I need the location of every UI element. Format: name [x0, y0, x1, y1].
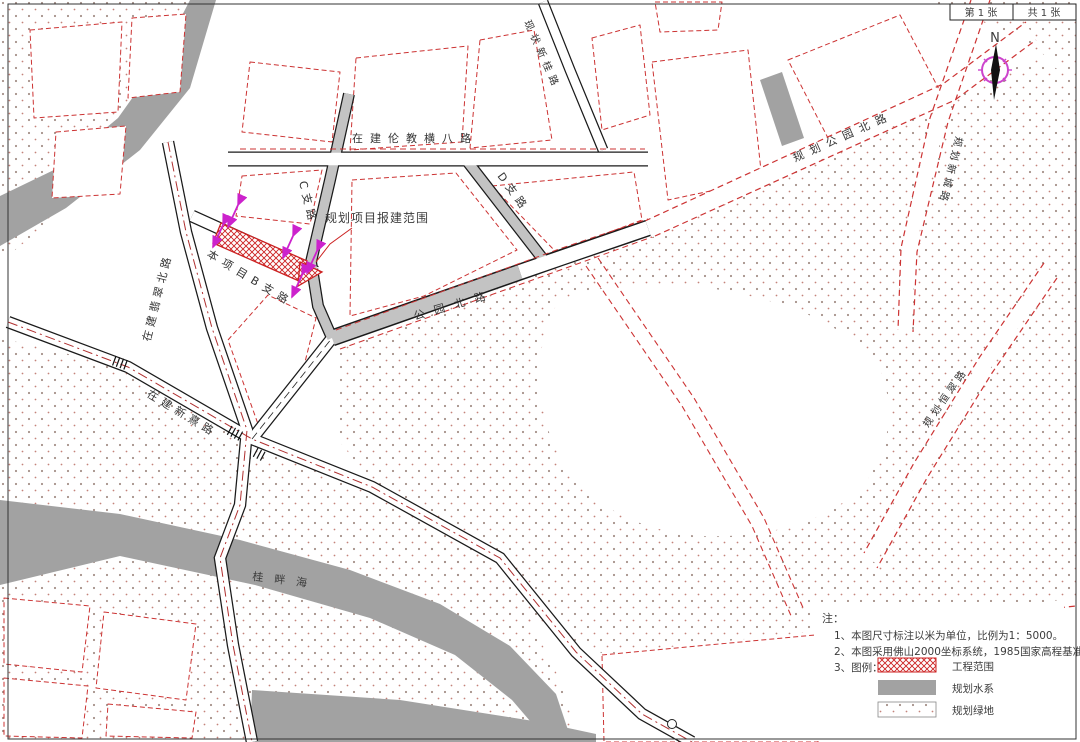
map-canvas: 在建伦教横八路 C支路 D支路 本项目B支路 公园北路 规划公园北路 在建翡翠北…: [0, 0, 1080, 742]
sheet-title-block: 第 1 张 共 1 张: [950, 4, 1076, 20]
sheet-current: 第 1 张: [965, 6, 998, 19]
legend-swatch-water: [878, 680, 936, 695]
label-feicui-road: 在建翡翠北路: [139, 252, 174, 343]
sheet-total: 共 1 张: [1028, 7, 1061, 19]
legend-label-green: 规划绿地: [952, 704, 994, 717]
planning-map: 在建伦教横八路 C支路 D支路 本项目B支路 公园北路 规划公园北路 在建翡翠北…: [0, 0, 1080, 742]
notes-title: 注：: [822, 611, 844, 625]
notes-line1: 1、本图尺寸标注以米为单位，比例为1：5000。: [834, 629, 1063, 642]
water-right-strip: [760, 72, 804, 146]
legend-label-water: 规划水系: [952, 682, 994, 695]
legend-swatch-green: [878, 702, 936, 717]
notes-panel: 注： 1、本图尺寸标注以米为单位，比例为1：5000。 2、本图采用佛山2000…: [814, 602, 1080, 738]
notes-line3-prefix: 3、图例：: [834, 661, 883, 674]
notes-line2: 2、本图采用佛山2000坐标系统，1985国家高程基准。: [834, 645, 1080, 658]
legend-label-project: 工程范围: [952, 660, 994, 673]
label-project-range: 规划项目报建范围: [325, 210, 429, 225]
junction-node: [668, 720, 677, 729]
label-hengba-road: 在建伦教横八路: [352, 131, 478, 145]
north-label: N: [990, 31, 1000, 46]
legend-swatch-project: [878, 658, 936, 672]
